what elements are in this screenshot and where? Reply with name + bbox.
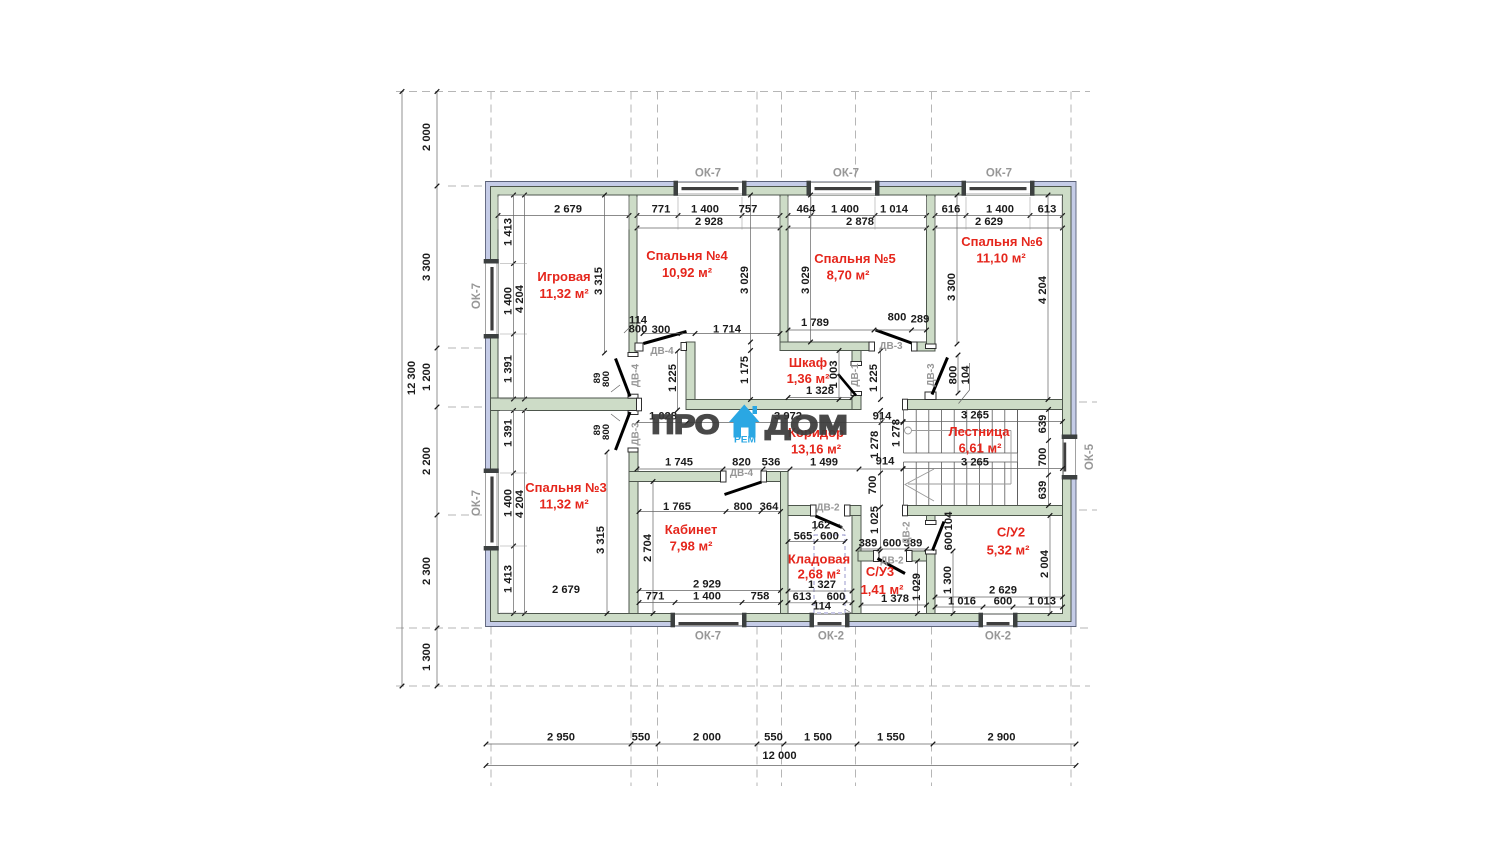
svg-text:616: 616 [942,204,961,216]
svg-text:2 679: 2 679 [552,584,580,596]
svg-text:1 400: 1 400 [691,204,719,216]
svg-text:1,36 м²: 1,36 м² [787,371,831,386]
svg-text:2 200: 2 200 [421,447,433,475]
svg-text:1 550: 1 550 [877,732,905,744]
svg-text:ОК-2: ОК-2 [985,631,1011,643]
svg-text:1 225: 1 225 [667,364,679,392]
svg-text:104: 104 [960,365,972,384]
svg-text:1 029: 1 029 [911,573,923,601]
svg-text:800: 800 [601,371,612,387]
svg-text:550: 550 [764,732,783,744]
svg-text:2,68 м²: 2,68 м² [798,567,842,582]
svg-text:700: 700 [1037,448,1049,467]
svg-text:600: 600 [994,595,1013,607]
svg-text:2 679: 2 679 [554,204,582,216]
svg-text:ОК-7: ОК-7 [471,283,483,309]
svg-text:8,70 м²: 8,70 м² [827,268,871,283]
svg-text:771: 771 [646,591,665,603]
svg-text:1 400: 1 400 [693,591,721,603]
svg-text:ДВ-4: ДВ-4 [730,468,754,479]
svg-text:536: 536 [762,457,781,469]
svg-text:3 300: 3 300 [946,273,958,301]
svg-text:6,61 м²: 6,61 м² [959,441,1003,456]
svg-text:1 013: 1 013 [1028,595,1056,607]
svg-text:3 265: 3 265 [961,457,989,469]
svg-text:Кладовая: Кладовая [788,552,850,567]
svg-text:Спальня №3: Спальня №3 [525,480,607,495]
svg-text:613: 613 [793,591,812,603]
svg-text:11,10 м²: 11,10 м² [976,251,1026,266]
svg-text:1 175: 1 175 [739,356,751,384]
svg-text:2 878: 2 878 [846,216,874,228]
svg-text:1 328: 1 328 [806,385,834,397]
svg-text:2 928: 2 928 [695,216,723,228]
svg-text:С/У3: С/У3 [866,564,894,579]
svg-text:1 025: 1 025 [869,506,881,534]
svg-text:800: 800 [948,366,960,385]
svg-text:1 714: 1 714 [713,324,742,336]
svg-text:289: 289 [911,314,930,326]
svg-text:1 300: 1 300 [421,643,433,671]
svg-text:3 029: 3 029 [800,266,812,294]
svg-text:1 278: 1 278 [869,431,881,459]
svg-text:Лестница: Лестница [948,424,1010,439]
svg-text:ДВ-4: ДВ-4 [630,363,641,387]
svg-text:Спальня №4: Спальня №4 [646,248,728,263]
svg-text:Спальня №5: Спальня №5 [814,251,896,266]
svg-text:3 029: 3 029 [739,266,751,294]
svg-text:ПРО: ПРО [652,410,720,440]
svg-text:ОК-5: ОК-5 [1084,443,1096,470]
svg-text:Кабинет: Кабинет [665,522,718,537]
svg-text:1 765: 1 765 [663,501,691,513]
svg-text:10,92 м²: 10,92 м² [662,265,713,280]
svg-text:12 000: 12 000 [762,750,796,762]
svg-text:ДВ-3: ДВ-3 [879,341,903,352]
svg-text:ОК-7: ОК-7 [833,168,859,180]
svg-text:1 500: 1 500 [804,732,832,744]
svg-text:ДОМ: ДОМ [765,410,848,440]
svg-text:12 300: 12 300 [406,361,418,395]
svg-text:1 745: 1 745 [665,457,693,469]
svg-text:2 000: 2 000 [693,732,721,744]
svg-text:4 204: 4 204 [514,284,526,313]
svg-text:389: 389 [859,538,878,550]
svg-text:2 300: 2 300 [421,557,433,585]
svg-text:114: 114 [813,601,832,613]
svg-text:600: 600 [883,538,902,550]
svg-text:ОК-7: ОК-7 [695,631,721,643]
svg-text:758: 758 [751,591,770,603]
svg-text:2 900: 2 900 [988,732,1016,744]
svg-text:ДВ-1: ДВ-1 [850,363,861,387]
svg-text:613: 613 [1038,204,1057,216]
svg-text:7,98 м²: 7,98 м² [670,539,714,554]
svg-text:Игровая: Игровая [537,269,590,284]
svg-text:1 400: 1 400 [831,204,859,216]
svg-text:800: 800 [601,424,612,440]
svg-text:820: 820 [732,457,751,469]
svg-text:1 400: 1 400 [503,287,515,315]
svg-text:Шкаф: Шкаф [789,355,827,370]
svg-text:Спальня №6: Спальня №6 [961,234,1043,249]
svg-text:364: 364 [760,501,779,513]
svg-text:5,32 м²: 5,32 м² [987,543,1031,558]
svg-text:464: 464 [797,204,816,216]
svg-text:565: 565 [794,531,813,543]
svg-text:639: 639 [1037,481,1049,500]
svg-text:800: 800 [888,312,907,324]
svg-text:2 950: 2 950 [547,732,575,744]
svg-text:1 300: 1 300 [942,566,954,594]
svg-text:300: 300 [652,324,671,336]
svg-text:757: 757 [739,204,758,216]
svg-text:11,32 м²: 11,32 м² [539,497,589,512]
svg-text:2 629: 2 629 [975,216,1003,228]
svg-text:3 315: 3 315 [593,267,605,295]
svg-text:1,41 м²: 1,41 м² [861,582,905,597]
svg-text:1 225: 1 225 [868,364,880,392]
svg-text:600: 600 [943,532,955,551]
svg-text:2 004: 2 004 [1039,549,1051,578]
svg-text:ОК-7: ОК-7 [986,168,1012,180]
svg-text:1 200: 1 200 [421,363,433,391]
svg-text:ДВ-3: ДВ-3 [926,363,937,387]
svg-text:104: 104 [943,511,955,530]
svg-text:ДВ-2: ДВ-2 [902,521,913,545]
svg-text:ДВ-3: ДВ-3 [630,422,641,446]
svg-text:ОК-7: ОК-7 [471,490,483,516]
svg-text:11,32 м²: 11,32 м² [539,286,589,301]
svg-text:13,16 м²: 13,16 м² [791,442,842,457]
svg-text:1 391: 1 391 [503,419,515,447]
svg-text:1 499: 1 499 [810,457,838,469]
svg-text:2 000: 2 000 [421,123,433,151]
svg-text:914: 914 [873,411,892,423]
svg-text:ОК-2: ОК-2 [818,631,844,643]
svg-text:1 278: 1 278 [891,419,903,447]
svg-text:2 704: 2 704 [642,533,654,562]
svg-text:1 391: 1 391 [503,355,515,383]
svg-text:РЕМ: РЕМ [734,435,756,445]
svg-text:800: 800 [734,501,753,513]
svg-text:1 413: 1 413 [503,565,515,593]
svg-text:639: 639 [1037,415,1049,434]
svg-text:771: 771 [652,204,671,216]
svg-text:1 413: 1 413 [503,218,515,246]
svg-text:1 014: 1 014 [880,204,909,216]
svg-text:1 400: 1 400 [986,204,1014,216]
svg-text:700: 700 [867,476,879,495]
svg-text:2 929: 2 929 [693,579,721,591]
svg-text:800: 800 [629,324,648,336]
svg-text:ОК-7: ОК-7 [695,168,721,180]
svg-text:ДВ-2: ДВ-2 [816,503,840,514]
svg-text:1 789: 1 789 [801,317,829,329]
svg-text:600: 600 [820,531,839,543]
svg-text:4 204: 4 204 [1037,275,1049,304]
svg-text:3 265: 3 265 [961,410,989,422]
svg-text:С/У2: С/У2 [997,525,1025,540]
svg-text:1 016: 1 016 [948,595,976,607]
svg-text:3 300: 3 300 [421,253,433,281]
svg-text:550: 550 [632,732,651,744]
svg-text:1 400: 1 400 [503,489,515,517]
svg-text:3 315: 3 315 [595,526,607,554]
svg-text:ДВ-4: ДВ-4 [650,346,674,357]
